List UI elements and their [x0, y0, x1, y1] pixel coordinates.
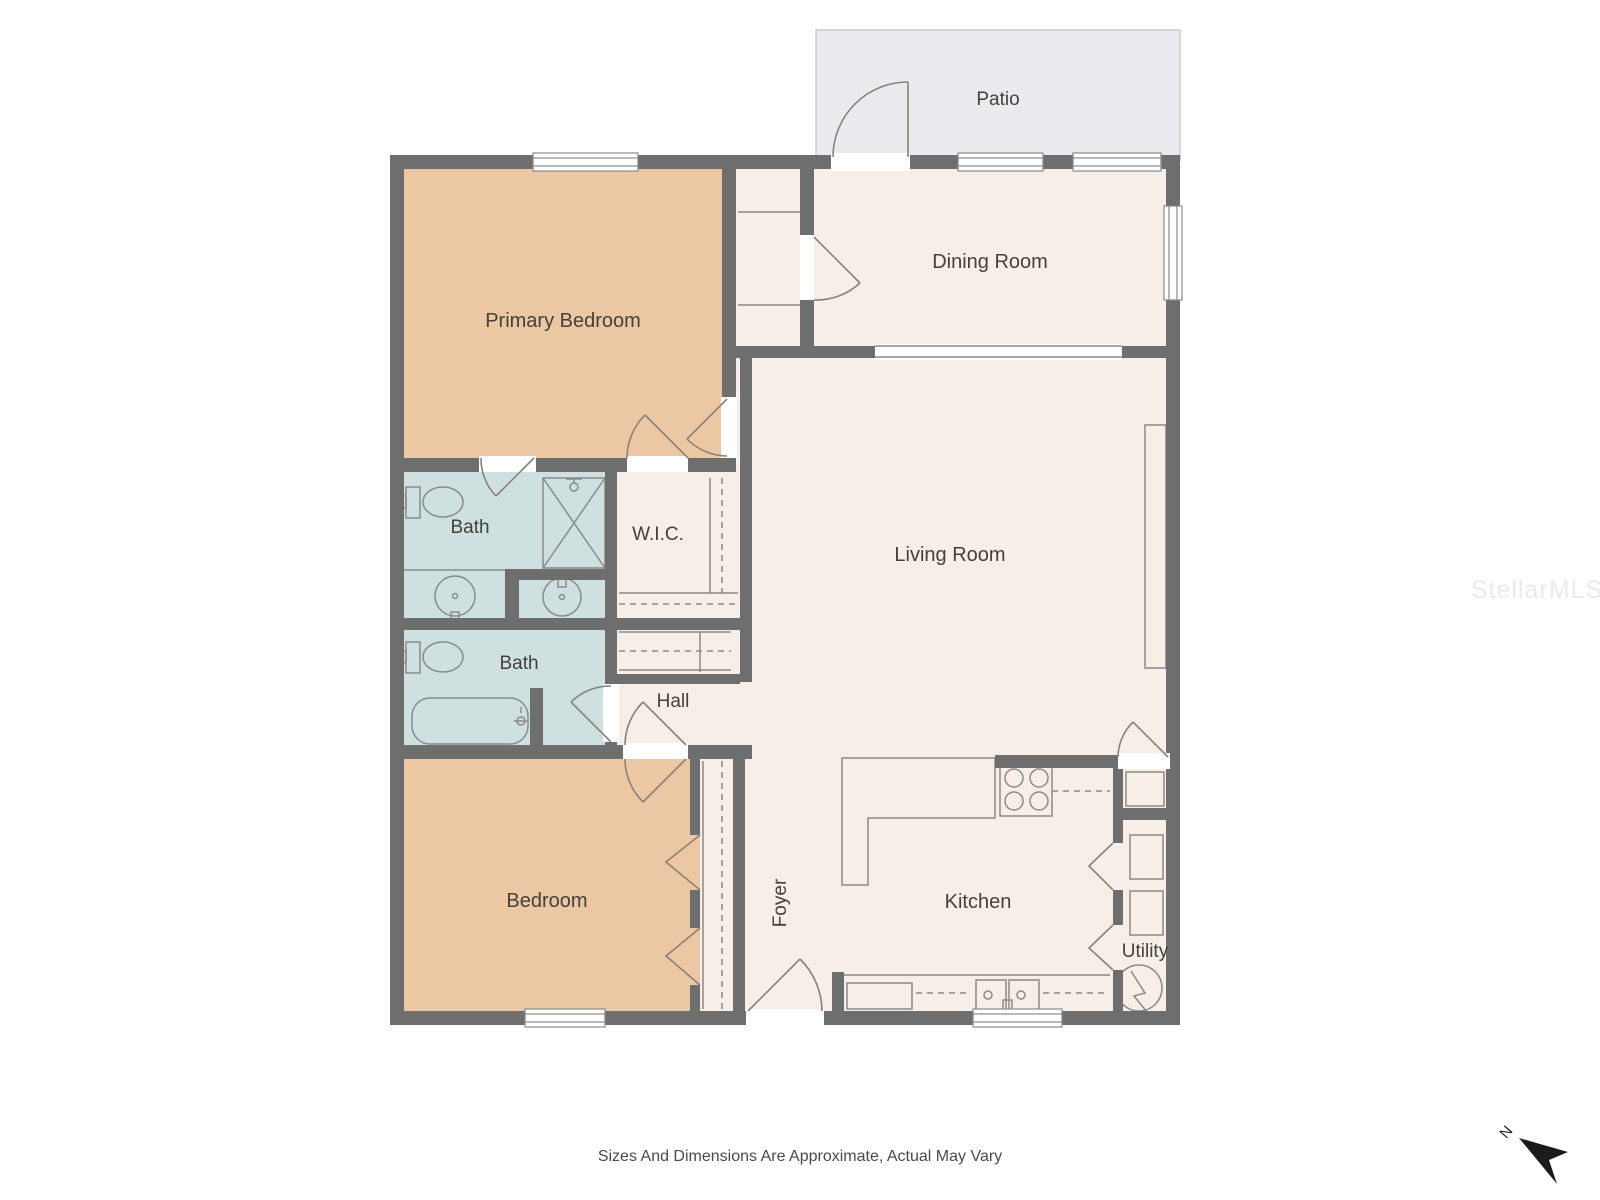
room-label-bedroom: Bedroom — [506, 890, 587, 912]
north-arrow-icon: N — [1496, 1123, 1568, 1184]
window — [525, 1009, 605, 1027]
room-label-foyer: Foyer — [770, 878, 791, 927]
room-label-utility: Utility — [1122, 941, 1169, 962]
cased-opening — [875, 344, 1122, 360]
window — [1164, 206, 1182, 300]
room-label-living-room: Living Room — [894, 544, 1005, 566]
room-label-wic: W.I.C. — [632, 524, 684, 545]
room-label-bath-hall: Bath — [499, 653, 538, 674]
room-label-bath-primary: Bath — [450, 517, 489, 538]
window — [533, 153, 638, 171]
north-label: N — [1496, 1123, 1516, 1142]
window — [958, 153, 1043, 171]
floor-plan: Patio Primary Bedroom Dining Room Living… — [0, 0, 1600, 1200]
room-label-kitchen: Kitchen — [945, 891, 1012, 913]
room-label-hall: Hall — [657, 691, 690, 712]
stellar-mls-watermark: StellarMLS — [1471, 576, 1600, 604]
window — [1073, 153, 1161, 171]
room-label-dining-room: Dining Room — [932, 251, 1048, 273]
window — [973, 1009, 1062, 1027]
room-label-patio: Patio — [976, 89, 1019, 110]
disclaimer-text: Sizes And Dimensions Are Approximate, Ac… — [598, 1148, 1002, 1165]
room-label-primary-bedroom: Primary Bedroom — [485, 310, 641, 332]
